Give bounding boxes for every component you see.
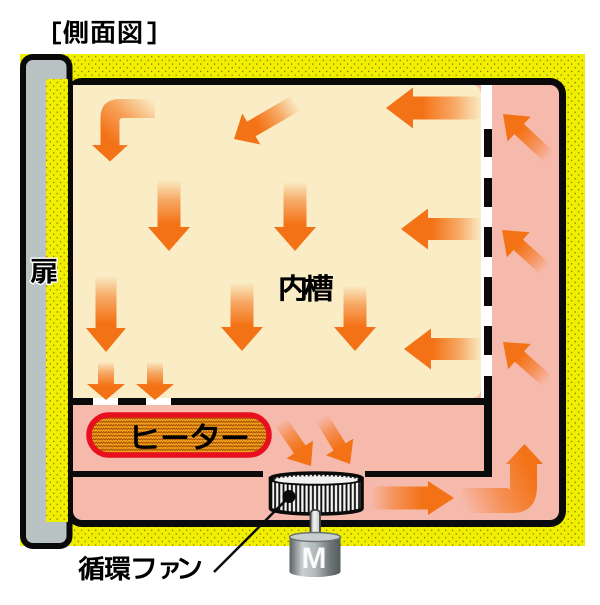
svg-text:M: M	[302, 542, 327, 575]
